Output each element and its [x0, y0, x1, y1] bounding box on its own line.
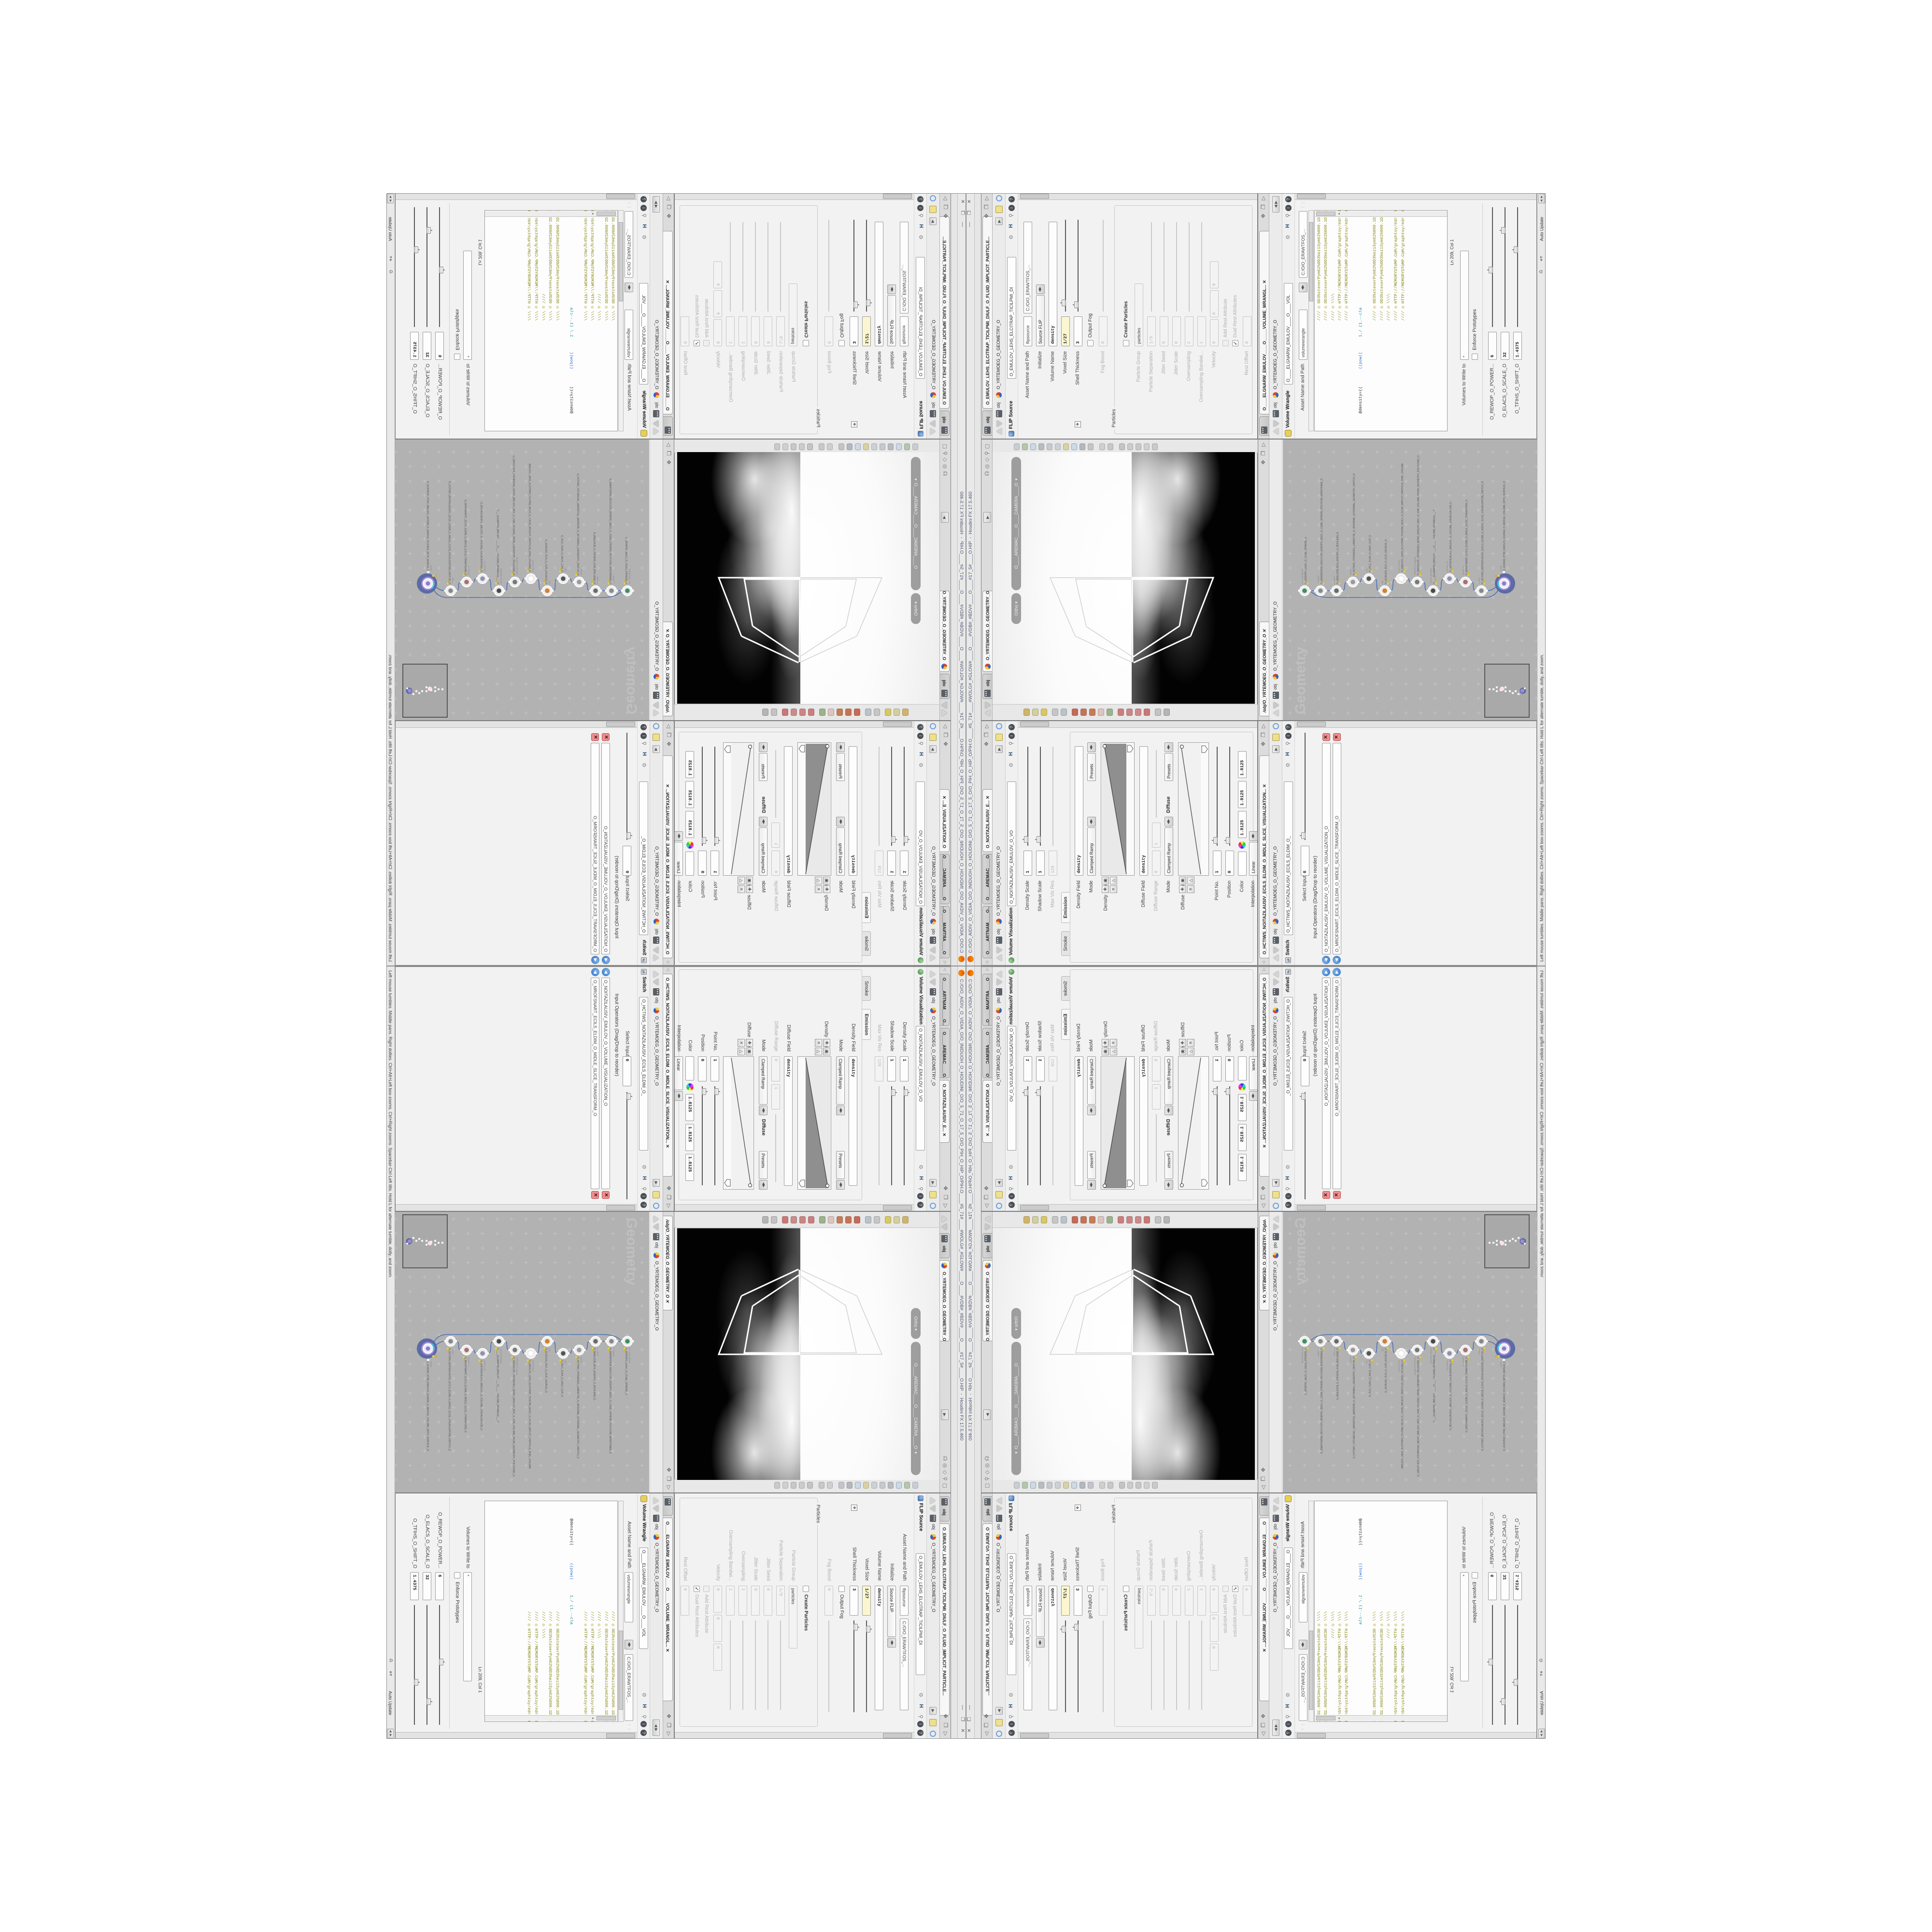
svg-text:Geometry: Geometry — [1293, 647, 1308, 714]
svg-text:Clip: Clip — [1365, 568, 1368, 572]
svg-text:Merge: Merge — [1500, 1361, 1502, 1367]
svg-text:Switch: Switch — [580, 569, 582, 575]
svg-text:O_HCTIWS_YRTEMOEG_LANRETXE_O_I: O_HCTIWS_YRTEMOEG_LANRETXE_O_INTERNAL_EX… — [576, 473, 579, 575]
svg-text:FLIP Source: FLIP Source — [532, 560, 534, 572]
svg-text:O_EMULOV_LEHS_ELCITRAP_TICILPM: O_EMULOV_LEHS_ELCITRAP_TICILPMI_DIULF_O_… — [528, 463, 531, 572]
svg-text:O_HCTIWS_NOITAZILAUSIV_ECILS_E: O_HCTIWS_NOITAZILAUSIV_ECILS_ELDIM_O_MID… — [448, 1348, 451, 1451]
svg-text:O_EMULOV_LEHS_ELCITRAP_TICILPM: O_EMULOV_LEHS_ELCITRAP_TICILPMI_DIULF_O_… — [1401, 463, 1404, 572]
svg-text:Transform: Transform — [468, 1357, 470, 1366]
svg-text:Volume Vis: Volume Vis — [483, 561, 486, 572]
svg-text:Switch: Switch — [1350, 1357, 1352, 1363]
svg-text:FLIP Source: FLIP Source — [532, 1360, 534, 1372]
svg-text:Switch: Switch — [1478, 1348, 1480, 1354]
svg-text:O_MROFSNART_ECILS_ELDIM_O_MIDL: O_MROFSNART_ECILS_ELDIM_O_MIDLE_SLICE_TR… — [464, 499, 467, 575]
svg-text:Volume Vis: Volume Vis — [483, 1360, 486, 1371]
svg-text:O_MROFSNART_ECILS_ELDIM_O_MIDL: O_MROFSNART_ECILS_ELDIM_O_MIDLE_SLICE_TR… — [1465, 1357, 1468, 1433]
svg-text:O_EREHPS_EBUC_O_CUBE_SPHERE_O: O_EREHPS_EBUC_O_CUBE_SPHERE_O — [625, 1348, 627, 1395]
svg-text:O_EMARFERIW_NOGYLOP_EREHPS_EBU: O_EMARFERIW_NOGYLOP_EREHPS_EBUC_O_CUBE_S… — [1321, 1348, 1323, 1454]
svg-text:Switch: Switch — [1350, 569, 1352, 575]
svg-text:O_PILC_FLAH_O_HALF_CLIP_O: O_PILC_FLAH_O_HALF_CLIP_O — [1369, 535, 1372, 572]
svg-text:O_EREHPS_EBUC_O_CUBE_SPHERE_O: O_EREHPS_EBUC_O_CUBE_SPHERE_O — [1305, 1348, 1307, 1395]
svg-text:O_NAELOOB_BUS_EREHPS_O_BOOLEAN: O_NAELOOB_BUS_EREHPS_O_BOOLEAN_O — [1336, 1348, 1339, 1400]
svg-text:O_HCTIWS_YRTEMOEG_LANRETXE_O_I: O_HCTIWS_YRTEMOEG_LANRETXE_O_INTERNAL_EX… — [576, 1357, 579, 1459]
svg-text:Boolean: Boolean — [597, 1348, 599, 1356]
svg-text:O____ELGNARW_EMULOV____O_____V: O____ELGNARW_EMULOV____O_____VOLUME_WRAN… — [496, 1348, 499, 1423]
svg-text:Volume Wrangle: Volume Wrangle — [1430, 568, 1432, 584]
svg-text:O_PILC_FLAH_O_HALF_CLIP_O: O_PILC_FLAH_O_HALF_CLIP_O — [1369, 1360, 1372, 1397]
svg-text:Clip: Clip — [548, 1348, 551, 1352]
svg-text:PolyWire: PolyWire — [612, 1348, 615, 1357]
svg-text:O_EMARFERIW_NOGYLOP_EREHPS_EBU: O_EMARFERIW_NOGYLOP_EREHPS_EBUC_O_CUBE_S… — [609, 478, 611, 584]
svg-text:O_HCTIWS_NOITAZILAUSIV_ECILS_E: O_HCTIWS_NOITAZILAUSIV_ECILS_ELDIM_O_MID… — [448, 481, 451, 584]
svg-text:O_HCTIWS_NOITAZILAUSIV_ECILS_E: O_HCTIWS_NOITAZILAUSIV_ECILS_ELDIM_O_MID… — [1481, 481, 1484, 584]
svg-text:Switch: Switch — [1478, 578, 1480, 584]
svg-text:O_PILC_FLAH_O_HALF_CLIP_O: O_PILC_FLAH_O_HALF_CLIP_O — [560, 535, 563, 572]
svg-text:Clip: Clip — [564, 1360, 567, 1364]
svg-text:O_ECRUOS_PILF_O_FLIP_SOURCE_O: O_ECRUOS_PILF_O_FLIP_SOURCE_O — [1385, 1348, 1388, 1392]
svg-text:O____ELGNARW_EMULOV____O_____V: O____ELGNARW_EMULOV____O_____VOLUME_WRAN… — [1433, 509, 1436, 584]
svg-text:Transform: Transform — [1462, 566, 1464, 575]
svg-text:PolyWire: PolyWire — [1317, 1348, 1320, 1357]
svg-text:an_CubeSphere: an_CubeSphere — [1301, 568, 1304, 584]
svg-text:VDB from Polygons: VDB from Polygons — [516, 556, 518, 575]
svg-text:Merge: Merge — [430, 1361, 432, 1367]
svg-text:O_EGREM_HTIW_EMULOV_EGREM_O_ME: O_EGREM_HTIW_EMULOV_EGREM_O_MERGE_VOLUME… — [426, 481, 429, 571]
svg-text:an_CubeSphere: an_CubeSphere — [628, 1348, 631, 1364]
svg-text:O_EMARFERIW_NOGYLOP_EREHPS_EBU: O_EMARFERIW_NOGYLOP_EREHPS_EBUC_O_CUBE_S… — [609, 1348, 611, 1454]
svg-text:Geometry: Geometry — [624, 647, 639, 714]
svg-text:Volume Vis: Volume Vis — [1446, 561, 1449, 572]
svg-text:O_NAELOOB_BUS_EREHPS_O_BOOLEAN: O_NAELOOB_BUS_EREHPS_O_BOOLEAN_O — [1336, 532, 1339, 584]
svg-text:O_ECRUOS_PILF_O_FLIP_SOURCE_O: O_ECRUOS_PILF_O_FLIP_SOURCE_O — [1385, 540, 1388, 584]
svg-text:Switch: Switch — [452, 578, 454, 584]
svg-text:O_HCTIWS_NOITAZILAUSIV_ECILS_E: O_HCTIWS_NOITAZILAUSIV_ECILS_ELDIM_O_MID… — [1481, 1348, 1484, 1451]
svg-text:O_EREHPS_EBUC_O_CUBE_SPHERE_O: O_EREHPS_EBUC_O_CUBE_SPHERE_O — [625, 537, 627, 584]
svg-text:O_EMARFERIW_NOGYLOP_EREHPS_EBU: O_EMARFERIW_NOGYLOP_EREHPS_EBUC_O_CUBE_S… — [1321, 478, 1323, 584]
svg-text:Merge: Merge — [1500, 565, 1502, 571]
svg-text:Boolean: Boolean — [597, 576, 599, 584]
svg-text:an_CubeSphere: an_CubeSphere — [628, 568, 631, 584]
svg-text:O_ECRUOS_PILF_O_FLIP_SOURCE_O: O_ECRUOS_PILF_O_FLIP_SOURCE_O — [544, 1348, 547, 1392]
svg-text:Volume Wrangle: Volume Wrangle — [500, 1348, 502, 1364]
svg-text:O_NOITAZILAUSIV_EMULOV_O_VOLUM: O_NOITAZILAUSIV_EMULOV_O_VOLUME_VISUALIZ… — [480, 502, 483, 572]
svg-text:Clip: Clip — [564, 568, 567, 572]
svg-text:Switch: Switch — [452, 1348, 454, 1354]
svg-text:VDB from Polygons: VDB from Polygons — [1414, 556, 1416, 575]
svg-text:O_SNOGILOP_YRTEMOEG_MORF_EMULO: O_SNOGILOP_YRTEMOEG_MORF_EMULOV_BDV_O_VD… — [1417, 455, 1420, 575]
svg-text:Transform: Transform — [1462, 1357, 1464, 1366]
svg-text:O_HCTIWS_YRTEMOEG_LANRETXE_O_I: O_HCTIWS_YRTEMOEG_LANRETXE_O_INTERNAL_EX… — [1353, 1357, 1356, 1459]
svg-text:Geometry: Geometry — [1293, 1218, 1308, 1285]
svg-text:O_SNOGILOP_YRTEMOEG_MORF_EMULO: O_SNOGILOP_YRTEMOEG_MORF_EMULOV_BDV_O_VD… — [512, 1357, 515, 1477]
svg-text:Boolean: Boolean — [1333, 576, 1335, 584]
svg-text:O____ELGNARW_EMULOV____O_____V: O____ELGNARW_EMULOV____O_____VOLUME_WRAN… — [496, 509, 499, 584]
svg-text:O_SNOGILOP_YRTEMOEG_MORF_EMULO: O_SNOGILOP_YRTEMOEG_MORF_EMULOV_BDV_O_VD… — [512, 455, 515, 575]
svg-text:O_NOITAZILAUSIV_EMULOV_O_VOLUM: O_NOITAZILAUSIV_EMULOV_O_VOLUME_VISUALIZ… — [1449, 1360, 1452, 1430]
svg-text:VDB from Polygons: VDB from Polygons — [1414, 1357, 1416, 1376]
svg-text:Switch: Switch — [580, 1357, 582, 1363]
svg-text:an_CubeSphere: an_CubeSphere — [1301, 1348, 1304, 1364]
svg-text:O_NAELOOB_BUS_EREHPS_O_BOOLEAN: O_NAELOOB_BUS_EREHPS_O_BOOLEAN_O — [593, 532, 596, 584]
svg-text:O_NOITAZILAUSIV_EMULOV_O_VOLUM: O_NOITAZILAUSIV_EMULOV_O_VOLUME_VISUALIZ… — [1449, 502, 1452, 572]
svg-text:O_MROFSNART_ECILS_ELDIM_O_MIDL: O_MROFSNART_ECILS_ELDIM_O_MIDLE_SLICE_TR… — [464, 1357, 467, 1433]
svg-text:PolyWire: PolyWire — [612, 575, 615, 584]
svg-text:Volume Wrangle: Volume Wrangle — [1430, 1348, 1432, 1364]
svg-text:Volume Vis: Volume Vis — [1446, 1360, 1449, 1371]
svg-text:Boolean: Boolean — [1333, 1348, 1335, 1356]
svg-text:Volume Wrangle: Volume Wrangle — [500, 568, 502, 584]
svg-text:Merge: Merge — [430, 565, 432, 571]
svg-text:Clip: Clip — [1381, 580, 1384, 584]
svg-text:O_EMULOV_LEHS_ELCITRAP_TICILPM: O_EMULOV_LEHS_ELCITRAP_TICILPMI_DIULF_O_… — [1401, 1360, 1404, 1469]
svg-text:Geometry: Geometry — [624, 1218, 639, 1285]
svg-text:FLIP Source: FLIP Source — [1398, 1360, 1400, 1372]
svg-text:VDB from Polygons: VDB from Polygons — [516, 1357, 518, 1376]
svg-text:O_MROFSNART_ECILS_ELDIM_O_MIDL: O_MROFSNART_ECILS_ELDIM_O_MIDLE_SLICE_TR… — [1465, 499, 1468, 575]
svg-text:O_NOITAZILAUSIV_EMULOV_O_VOLUM: O_NOITAZILAUSIV_EMULOV_O_VOLUME_VISUALIZ… — [480, 1360, 483, 1430]
svg-text:O_EMULOV_LEHS_ELCITRAP_TICILPM: O_EMULOV_LEHS_ELCITRAP_TICILPMI_DIULF_O_… — [528, 1360, 531, 1469]
svg-text:FLIP Source: FLIP Source — [1398, 560, 1400, 572]
svg-text:Clip: Clip — [1365, 1360, 1368, 1364]
svg-text:Clip: Clip — [1381, 1348, 1384, 1352]
svg-text:O_EGREM_HTIW_EMULOV_EGREM_O_ME: O_EGREM_HTIW_EMULOV_EGREM_O_MERGE_VOLUME… — [1503, 1361, 1506, 1451]
svg-text:O____ELGNARW_EMULOV____O_____V: O____ELGNARW_EMULOV____O_____VOLUME_WRAN… — [1433, 1348, 1436, 1423]
svg-text:Clip: Clip — [548, 580, 551, 584]
svg-text:O_EGREM_HTIW_EMULOV_EGREM_O_ME: O_EGREM_HTIW_EMULOV_EGREM_O_MERGE_VOLUME… — [1503, 481, 1506, 571]
svg-text:O_EGREM_HTIW_EMULOV_EGREM_O_ME: O_EGREM_HTIW_EMULOV_EGREM_O_MERGE_VOLUME… — [426, 1361, 429, 1451]
svg-text:O_SNOGILOP_YRTEMOEG_MORF_EMULO: O_SNOGILOP_YRTEMOEG_MORF_EMULOV_BDV_O_VD… — [1417, 1357, 1420, 1477]
svg-text:O_EREHPS_EBUC_O_CUBE_SPHERE_O: O_EREHPS_EBUC_O_CUBE_SPHERE_O — [1305, 537, 1307, 584]
svg-text:O_HCTIWS_YRTEMOEG_LANRETXE_O_I: O_HCTIWS_YRTEMOEG_LANRETXE_O_INTERNAL_EX… — [1353, 473, 1356, 575]
svg-text:O_ECRUOS_PILF_O_FLIP_SOURCE_O: O_ECRUOS_PILF_O_FLIP_SOURCE_O — [544, 540, 547, 584]
svg-text:O_NAELOOB_BUS_EREHPS_O_BOOLEAN: O_NAELOOB_BUS_EREHPS_O_BOOLEAN_O — [593, 1348, 596, 1400]
svg-text:O_PILC_FLAH_O_HALF_CLIP_O: O_PILC_FLAH_O_HALF_CLIP_O — [560, 1360, 563, 1397]
svg-text:PolyWire: PolyWire — [1317, 575, 1320, 584]
svg-text:Transform: Transform — [468, 566, 470, 575]
